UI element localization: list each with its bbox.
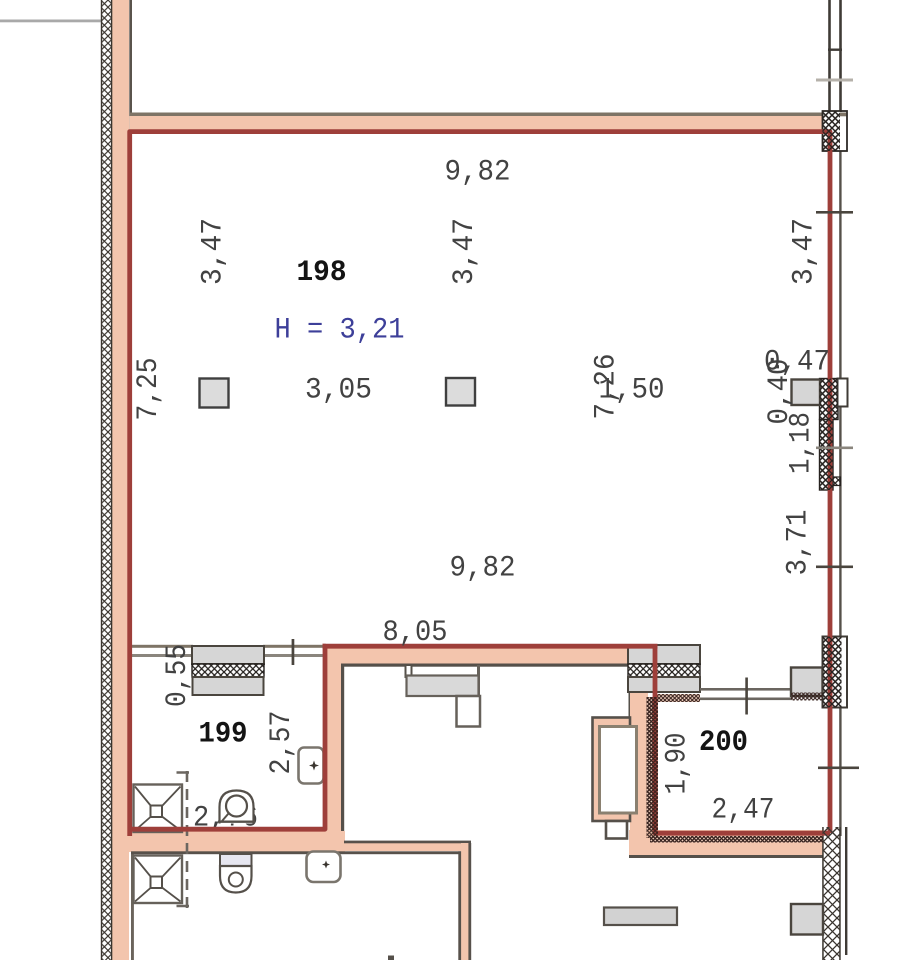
svg-text:9,82: 9,82	[445, 156, 511, 190]
svg-text:2,57: 2,57	[265, 711, 299, 775]
svg-text:8,05: 8,05	[383, 616, 448, 650]
svg-text:7,25: 7,25	[132, 358, 166, 421]
svg-text:1,90: 1,90	[661, 733, 695, 795]
svg-text:198: 198	[297, 256, 347, 290]
svg-text:H = 3,21: H = 3,21	[275, 314, 405, 348]
svg-text:3,05: 3,05	[305, 374, 372, 408]
svg-text:0,55: 0,55	[161, 644, 195, 707]
svg-text:2,47: 2,47	[712, 794, 775, 828]
svg-text:200: 200	[699, 726, 748, 760]
svg-text:3,47: 3,47	[197, 218, 231, 285]
svg-text:1,18: 1,18	[785, 412, 819, 474]
svg-text:1,50: 1,50	[599, 374, 665, 408]
svg-text:199: 199	[199, 718, 248, 752]
svg-text:0,47: 0,47	[764, 346, 830, 380]
svg-text:3,71: 3,71	[782, 510, 816, 576]
svg-text:3,47: 3,47	[788, 218, 822, 285]
svg-text:3,47: 3,47	[448, 218, 482, 285]
svg-text:9,82: 9,82	[450, 552, 516, 586]
